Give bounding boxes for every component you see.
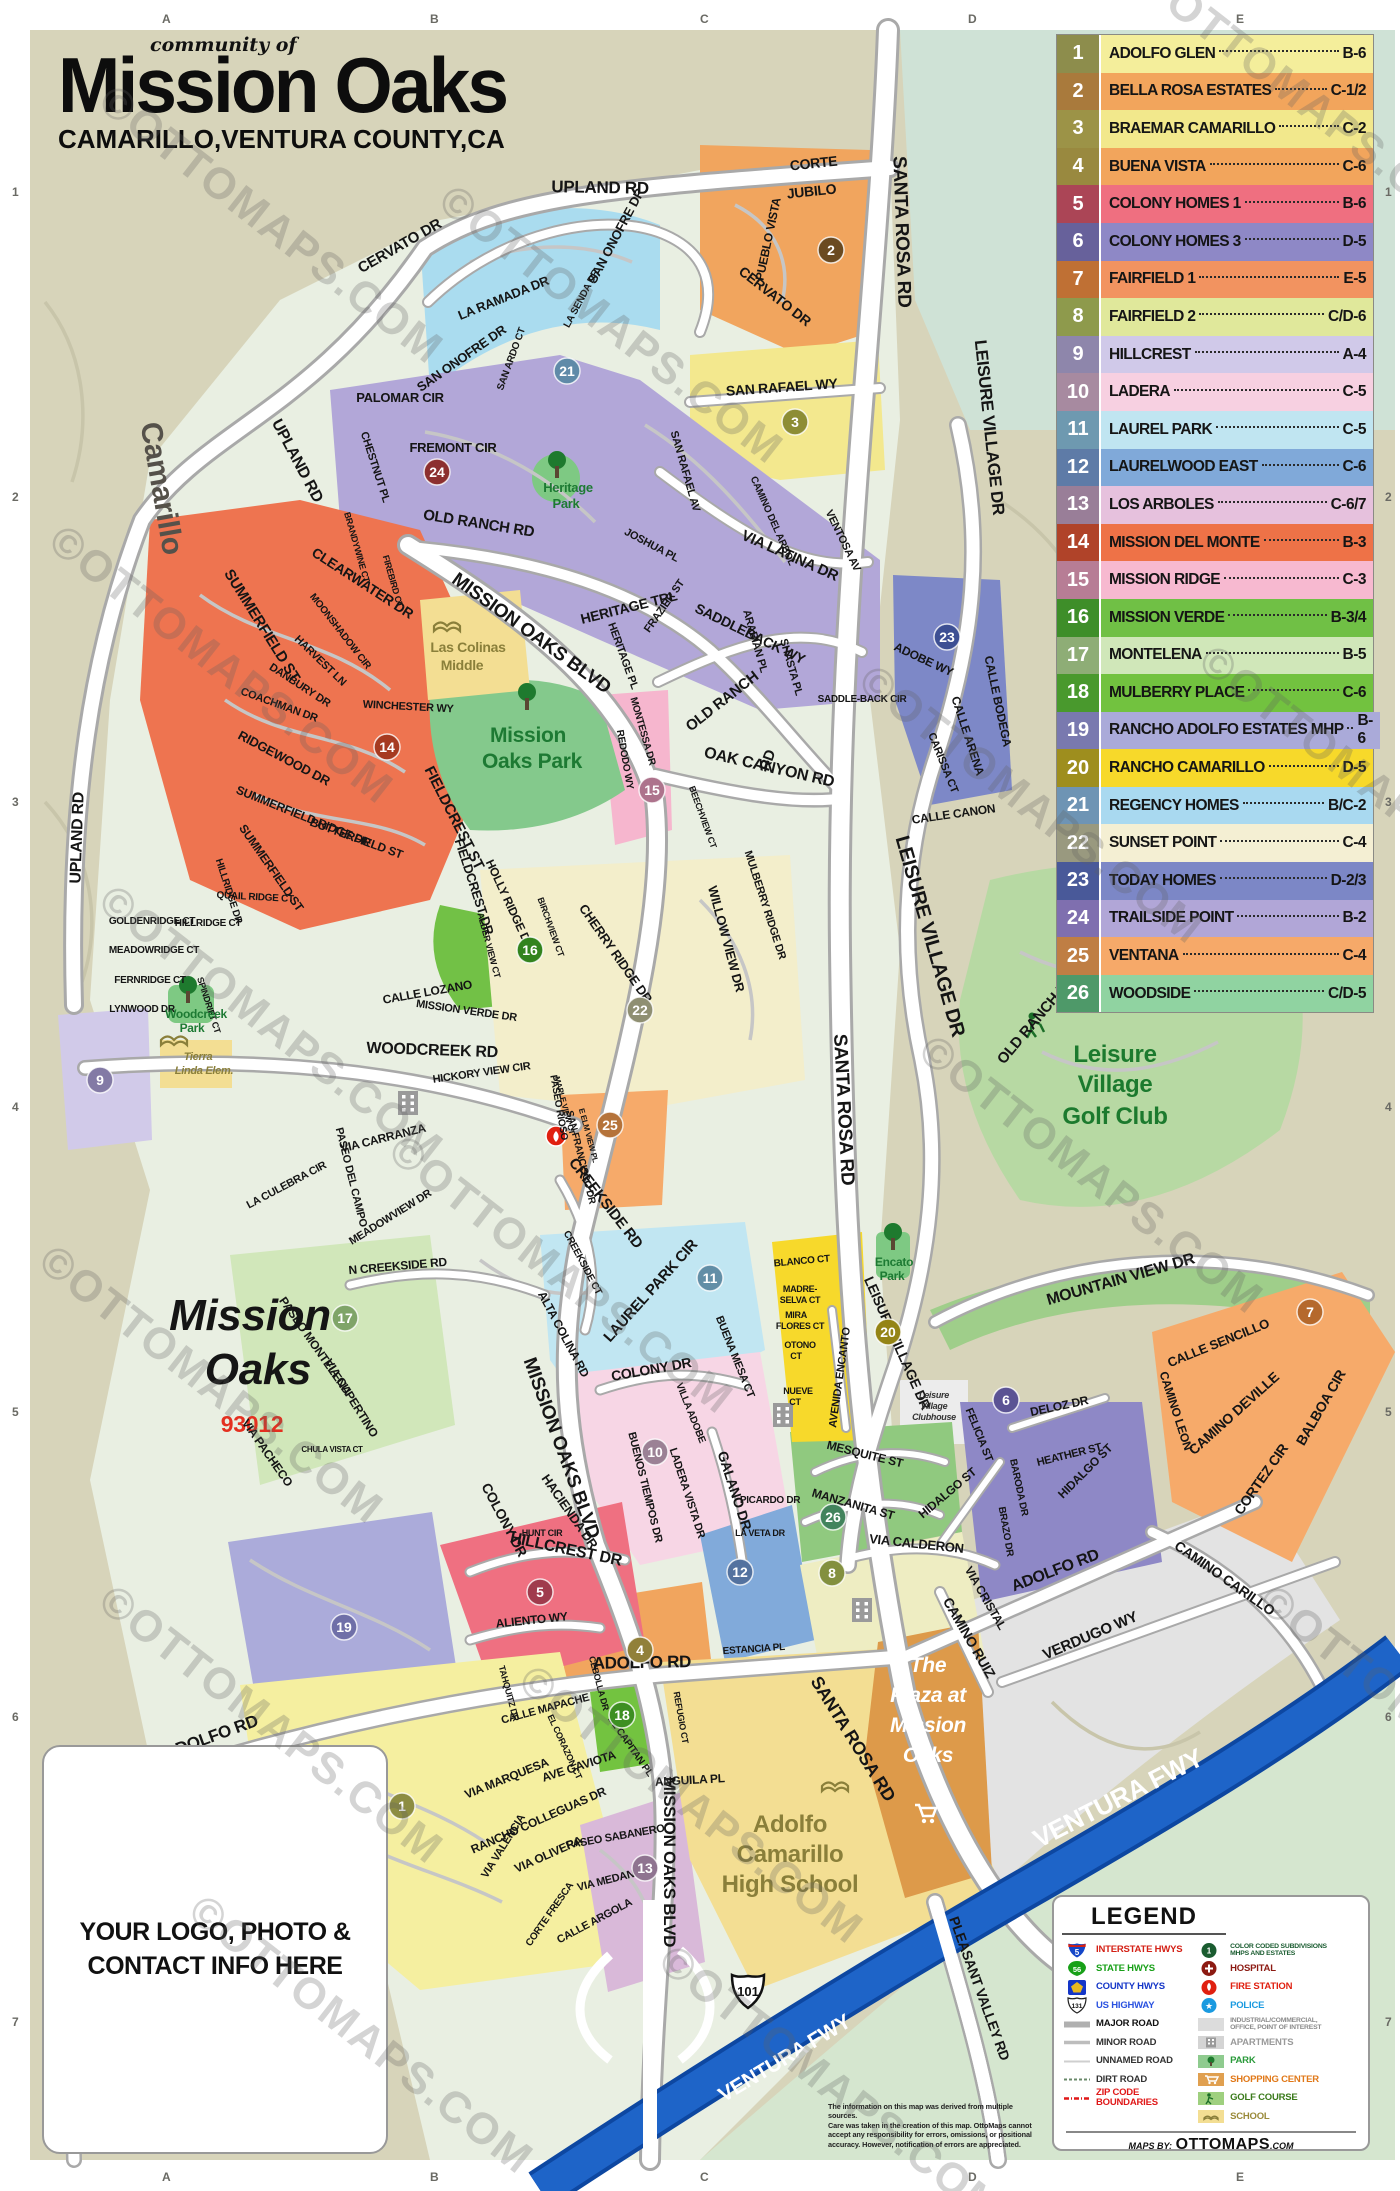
map-label: FERNRIDGE CT (114, 975, 186, 986)
subdivision-marker: 2 (818, 237, 844, 263)
index-row-name: MISSION RIDGE (1109, 571, 1220, 589)
index-row: 10LADERAC-5 (1057, 373, 1373, 411)
map-label: Oaks Park (482, 750, 583, 773)
index-row-gridref: C/D-5 (1328, 985, 1366, 1003)
legend-left-column: 5INTERSTATE HWYS56STATE HWYSCOUNTY HWYS1… (1062, 1941, 1196, 2126)
map-label: MISSION OAKS BLVD (660, 1777, 679, 1947)
legend-row-label: APARTMENTS (1230, 2038, 1293, 2048)
svg-text:13: 13 (637, 1860, 653, 1876)
index-row: 9HILLCRESTA-4 (1057, 336, 1373, 374)
subdivision-marker: 20 (875, 1319, 901, 1345)
index-row-name: RANCHO ADOLFO ESTATES MHP (1109, 721, 1343, 739)
subdivision-marker: 11 (697, 1265, 723, 1291)
index-row-gridref: A-4 (1343, 346, 1366, 364)
grid-label: 1 (12, 185, 19, 199)
map-label: Park (553, 496, 581, 511)
index-row-leader (1210, 163, 1339, 165)
map-label: LA VETA DR (735, 1528, 785, 1538)
grid-label: 5 (12, 1405, 19, 1419)
legend-row-label: DIRT ROAD (1096, 2075, 1147, 2085)
subdivision-marker: 21 (554, 358, 580, 384)
index-row-leader (1245, 201, 1339, 203)
svg-text:26: 26 (825, 1509, 841, 1525)
index-row-name: FAIRFIELD 1 (1109, 270, 1195, 288)
legend-box: LEGEND 5INTERSTATE HWYS56STATE HWYSCOUNT… (1052, 1895, 1370, 2151)
index-row-number: 13 (1057, 486, 1099, 524)
legend-row-label: SHOPPING CENTER (1230, 2075, 1319, 2085)
index-row-name: LADERA (1109, 383, 1170, 401)
legend-row-label: COUNTY HWYS (1096, 1982, 1165, 1992)
index-row-leader (1195, 351, 1339, 353)
index-row-name: MONTELENA (1109, 646, 1202, 664)
index-row-leader (1220, 877, 1327, 879)
index-row-gridref: B-6 (1343, 195, 1366, 213)
map-label: Heritage (543, 480, 593, 495)
subdivision-circle-icon: 1 (1196, 1942, 1230, 1959)
subdivision-marker: 15 (639, 777, 665, 803)
legend-credit: MAPS BY: OTTOMAPS.COM (1062, 2136, 1360, 2154)
svg-text:14: 14 (379, 739, 395, 755)
map-label: Mission (890, 1714, 966, 1737)
map-label: Las Colinas (430, 639, 506, 655)
index-row-number: 3 (1057, 110, 1099, 148)
legend-row-label: FIRE STATION (1230, 1982, 1292, 1992)
legend-row: MINOR ROAD (1062, 2034, 1196, 2053)
index-row-number: 15 (1057, 561, 1099, 599)
map-label: Leisure (1073, 1041, 1156, 1068)
map-label: CT (790, 1351, 802, 1361)
map-label: NUEVE (783, 1386, 813, 1396)
subdivision-marker: 17 (332, 1305, 358, 1331)
disclaimer-text: The information on this map was derived … (828, 2102, 1038, 2149)
subdivision-index: 1ADOLFO GLENB-62BELLA ROSA ESTATESC-1/23… (1056, 34, 1374, 1013)
svg-text:23: 23 (939, 629, 955, 645)
legend-row-label: MINOR ROAD (1096, 2038, 1156, 2048)
index-row-leader (1269, 765, 1339, 767)
subdivision-marker: 26 (820, 1504, 846, 1530)
svg-text:6: 6 (1002, 1392, 1010, 1408)
map-label: CHULA VISTA CT (301, 1445, 363, 1454)
index-row-name: ADOLFO GLEN (1109, 45, 1215, 63)
swatch-school-icon (1196, 2108, 1230, 2125)
legend-row-label: POLICE (1230, 2001, 1264, 2011)
legend-row-label: INTERSTATE HWYS (1096, 1945, 1182, 1955)
index-row-leader (1245, 238, 1339, 240)
subdivision-marker: 22 (627, 997, 653, 1023)
svg-text:3: 3 (791, 414, 799, 430)
us-shield-icon: 131 (1062, 1997, 1096, 2014)
legend-row: INDUSTRIAL/COMMERCIAL, OFFICE, POINT OF … (1196, 2015, 1360, 2034)
svg-text:131: 131 (1072, 2003, 1083, 2010)
svg-text:10: 10 (647, 1444, 663, 1460)
index-row-leader (1194, 990, 1324, 992)
index-row-gridref: D-5 (1343, 233, 1366, 251)
svg-text:20: 20 (880, 1324, 896, 1340)
index-row-leader (1218, 501, 1327, 503)
index-row-gridref: E-5 (1343, 270, 1366, 288)
legend-row: 1COLOR CODED SUBDIVISIONS MHPS AND ESTAT… (1196, 1941, 1360, 1960)
map-label: OTONO (784, 1340, 816, 1350)
legend-row: MAJOR ROAD (1062, 2015, 1196, 2034)
interstate-shield-icon: 5 (1062, 1942, 1096, 1959)
svg-text:16: 16 (522, 942, 538, 958)
index-row: 15MISSION RIDGEC-3 (1057, 561, 1373, 599)
police-icon: ★ (1196, 1997, 1230, 2014)
grid-label: C (700, 12, 709, 26)
major-road-icon (1062, 2016, 1096, 2033)
grid-label: B (430, 2170, 439, 2184)
index-row-leader (1199, 276, 1339, 278)
index-row-gridref: C-2 (1343, 120, 1366, 138)
index-row-leader (1275, 88, 1326, 90)
svg-text:8: 8 (828, 1565, 836, 1581)
index-row-gridref: C-5 (1343, 421, 1366, 439)
grid-label: C (700, 2170, 709, 2184)
index-row: 17MONTELENAB-5 (1057, 637, 1373, 675)
swatch-shopping-icon (1196, 2071, 1230, 2088)
subdivision-marker: 12 (727, 1559, 753, 1585)
legend-title-rule (1062, 1933, 1226, 1935)
map-label: HILLRIDGE CT (175, 918, 242, 929)
subdivision-marker: 18 (609, 1702, 635, 1728)
map-label: Village (1078, 1071, 1153, 1098)
index-row-name: TRAILSIDE POINT (1109, 909, 1233, 927)
swatch-apartments-icon (1196, 2034, 1230, 2051)
map-label: PICARDO DR (740, 1495, 801, 1506)
swatch-park-icon (1196, 2053, 1230, 2070)
zip-boundary-icon (1062, 2090, 1096, 2107)
index-row-name: MULBERRY PLACE (1109, 684, 1244, 702)
legend-row: SCHOOL (1196, 2108, 1360, 2127)
index-row-number: 21 (1057, 787, 1099, 825)
index-row-gridref: C-5 (1343, 383, 1366, 401)
legend-row-label: INDUSTRIAL/COMMERCIAL, OFFICE, POINT OF … (1230, 2017, 1321, 2031)
subdivision-marker: 9 (87, 1067, 113, 1093)
svg-text:11: 11 (703, 1270, 718, 1286)
map-label: Tierra (184, 1051, 213, 1063)
grid-label: 6 (1385, 1710, 1392, 1724)
svg-text:56: 56 (1073, 1965, 1081, 1974)
subdivision-marker: 13 (632, 1855, 658, 1881)
index-row: 23TODAY HOMESD-2/3 (1057, 862, 1373, 900)
index-row: 18MULBERRY PLACEC-6 (1057, 674, 1373, 712)
map-label: Oaks (205, 1345, 311, 1394)
index-row-leader (1347, 727, 1353, 729)
index-row: 16MISSION VERDEB-3/4 (1057, 599, 1373, 637)
index-row-gridref: C-1/2 (1331, 82, 1366, 100)
index-row-leader (1237, 915, 1338, 917)
index-row: 13LOS ARBOLESC-6/7 (1057, 486, 1373, 524)
map-label: Clubhouse (912, 1412, 956, 1422)
svg-text:101: 101 (737, 1984, 759, 1999)
index-row: 12LAURELWOOD EASTC-6 (1057, 449, 1373, 487)
subdivision-marker: 19 (331, 1614, 357, 1640)
legend-row-label: HOSPITAL (1230, 1964, 1276, 1974)
legend-row: UNNAMED ROAD (1062, 2052, 1196, 2071)
index-row-gridref: B-5 (1343, 646, 1366, 664)
index-row-name: LAURELWOOD EAST (1109, 458, 1258, 476)
index-row-number: 2 (1057, 73, 1099, 111)
index-row-name: REGENCY HOMES (1109, 797, 1239, 815)
index-row-gridref: C-3 (1343, 571, 1366, 589)
map-poster: { "page": { "title_script": "community o… (0, 0, 1400, 2191)
index-row-leader (1228, 614, 1326, 616)
index-row-number: 16 (1057, 599, 1099, 637)
legend-row-label: SCHOOL (1230, 2112, 1269, 2122)
index-row-name: MISSION DEL MONTE (1109, 534, 1260, 552)
index-row-name: MISSION VERDE (1109, 609, 1224, 627)
disclaimer-line: The information on this map was derived … (828, 2102, 1038, 2121)
grid-label: A (162, 2170, 171, 2184)
index-row-number: 25 (1057, 937, 1099, 975)
legend-row: HOSPITAL (1196, 1960, 1360, 1979)
grid-label: D (968, 12, 977, 26)
map-label: Middle (441, 657, 484, 673)
legend-row: COUNTY HWYS (1062, 1978, 1196, 1997)
index-row-number: 20 (1057, 749, 1099, 787)
svg-text:5: 5 (1075, 1948, 1080, 1957)
map-label: PALOMAR CIR (356, 390, 444, 405)
subdivision-marker: 8 (819, 1560, 845, 1586)
index-row: 14MISSION DEL MONTEB-3 (1057, 524, 1373, 562)
svg-text:9: 9 (96, 1072, 104, 1088)
svg-text:18: 18 (614, 1707, 630, 1723)
svg-text:4: 4 (636, 1642, 644, 1658)
index-row-leader (1264, 539, 1339, 541)
index-row-gridref: B-6 (1357, 712, 1372, 748)
svg-text:12: 12 (732, 1564, 748, 1580)
legend-row-label: UNNAMED ROAD (1096, 2056, 1173, 2066)
grid-label: 7 (12, 2015, 19, 2029)
index-row-number: 24 (1057, 900, 1099, 938)
index-row-leader (1174, 389, 1339, 391)
map-label: Park (180, 1021, 205, 1035)
grid-label: 2 (12, 490, 19, 504)
svg-text:2: 2 (827, 242, 835, 258)
map-label: Encato (875, 1255, 913, 1269)
index-row-name: COLONY HOMES 3 (1109, 233, 1241, 251)
subdivision-marker: 4 (627, 1637, 653, 1663)
index-row-gridref: B-3 (1343, 534, 1366, 552)
subdivision-marker: 10 (642, 1439, 668, 1465)
index-row: 22SUNSET POINTC-4 (1057, 824, 1373, 862)
logo-placeholder-box: YOUR LOGO, PHOTO & CONTACT INFO HERE (42, 1745, 388, 2154)
map-label: UPLAND RD (67, 792, 87, 884)
svg-text:22: 22 (632, 1002, 648, 1018)
map-label: Camarillo (737, 1841, 844, 1868)
grid-label: B (430, 12, 439, 26)
map-label: Adolfo (753, 1811, 827, 1838)
legend-row-label: STATE HWYS (1096, 1964, 1155, 1974)
legend-row: ZIP CODE BOUNDARIES (1062, 2089, 1196, 2108)
index-row-gridref: C/D-6 (1328, 308, 1366, 326)
legend-row: 5INTERSTATE HWYS (1062, 1941, 1196, 1960)
index-row-number: 1 (1057, 35, 1099, 73)
index-row-leader (1216, 426, 1338, 428)
index-row-gridref: B-2 (1343, 909, 1366, 927)
index-row: 8FAIRFIELD 2C/D-6 (1057, 298, 1373, 336)
map-label: CT (789, 1397, 801, 1407)
index-row-number: 11 (1057, 411, 1099, 449)
map-label: Golf Club (1062, 1103, 1167, 1130)
subdivision-marker: 7 (1297, 1299, 1323, 1325)
index-row-number: 5 (1057, 185, 1099, 223)
grid-label: 6 (12, 1710, 19, 1724)
legend-row: 56STATE HWYS (1062, 1960, 1196, 1979)
svg-text:7: 7 (1306, 1304, 1314, 1320)
index-row-leader (1219, 50, 1338, 52)
index-row-name: RANCHO CAMARILLO (1109, 759, 1265, 777)
index-row-gridref: B/C-2 (1328, 797, 1366, 815)
index-row-leader (1248, 689, 1338, 691)
grid-label: 3 (12, 795, 19, 809)
index-row-gridref: C-6 (1343, 458, 1366, 476)
index-row: 1ADOLFO GLENB-6 (1057, 35, 1373, 73)
legend-row-label: PARK (1230, 2056, 1255, 2066)
disclaimer-line: accept any responsibility for errors, om… (828, 2130, 1038, 2139)
index-row: 7FAIRFIELD 1E-5 (1057, 261, 1373, 299)
grid-label: 4 (1385, 1100, 1392, 1114)
fire-icon (1196, 1979, 1230, 1996)
index-row-gridref: D-2/3 (1331, 872, 1366, 890)
grid-label: E (1236, 12, 1244, 26)
legend-row-label: MAJOR ROAD (1096, 2019, 1159, 2029)
subdivision-marker: 14 (374, 734, 400, 760)
map-label: High School (722, 1871, 859, 1898)
hospital-icon (1196, 1960, 1230, 1977)
map-label: Village (921, 1401, 948, 1411)
disclaimer-line: Care was taken in the creation of this m… (828, 2121, 1038, 2130)
legend-row: ★POLICE (1196, 1997, 1360, 2016)
map-label: MEADOWRIDGE CT (109, 945, 199, 956)
index-row: 26WOODSIDEC/D-5 (1057, 975, 1373, 1013)
map-label: Park (880, 1269, 905, 1283)
logo-line-2: CONTACT INFO HERE (88, 1950, 343, 1984)
index-row: 24TRAILSIDE POINTB-2 (1057, 900, 1373, 938)
index-row-gridref: C-6 (1343, 158, 1366, 176)
legend-row: 131US HIGHWAY (1062, 1997, 1196, 2016)
index-row-leader (1199, 313, 1324, 315)
subdivision-marker: 5 (527, 1579, 553, 1605)
index-row-leader (1262, 464, 1339, 466)
index-row-name: WOODSIDE (1109, 985, 1190, 1003)
apartments-icon (398, 1091, 418, 1115)
legend-row: FIRE STATION (1196, 1978, 1360, 1997)
index-row: 21REGENCY HOMESB/C-2 (1057, 787, 1373, 825)
map-label: Woodcreek (165, 1007, 227, 1021)
index-row-name: SUNSET POINT (1109, 834, 1216, 852)
index-row-name: LAUREL PARK (1109, 421, 1212, 439)
grid-label: E (1236, 2170, 1244, 2184)
map-label: FREMONT CIR (410, 440, 498, 455)
grid-label: 2 (1385, 490, 1392, 504)
index-row-name: COLONY HOMES 1 (1109, 195, 1241, 213)
swatch-golf-icon (1196, 2090, 1230, 2107)
index-row-name: HILLCREST (1109, 346, 1191, 364)
subdivision-marker: 1 (389, 1793, 415, 1819)
svg-text:17: 17 (337, 1310, 353, 1326)
index-row: 11LAUREL PARKC-5 (1057, 411, 1373, 449)
index-row-number: 7 (1057, 261, 1099, 299)
svg-text:★: ★ (1205, 2001, 1213, 2011)
logo-line-1: YOUR LOGO, PHOTO & (79, 1916, 350, 1950)
legend-row-label: COLOR CODED SUBDIVISIONS MHPS AND ESTATE… (1230, 1943, 1327, 1957)
svg-text:19: 19 (336, 1619, 352, 1635)
svg-text:25: 25 (602, 1117, 618, 1133)
index-row-number: 6 (1057, 223, 1099, 261)
index-row: 2BELLA ROSA ESTATESC-1/2 (1057, 73, 1373, 111)
grid-label: D (968, 2170, 977, 2184)
state-shield-icon: 56 (1062, 1960, 1096, 1977)
credit-brand: OTTOMAPS (1176, 2136, 1270, 2153)
credit-suffix: .COM (1270, 2141, 1294, 2151)
index-row-gridref: C-4 (1343, 834, 1366, 852)
apartments-icon (852, 1598, 872, 1622)
index-row-name: VENTANA (1109, 947, 1179, 965)
index-row-leader (1243, 802, 1324, 804)
index-row-number: 8 (1057, 298, 1099, 336)
svg-text:1: 1 (1207, 1946, 1212, 1955)
index-row-leader (1279, 125, 1338, 127)
index-row-number: 12 (1057, 449, 1099, 487)
index-row-name: FAIRFIELD 2 (1109, 308, 1195, 326)
index-row-name: LOS ARBOLES (1109, 496, 1214, 514)
grid-label: A (162, 12, 171, 26)
legend-right-column: 1COLOR CODED SUBDIVISIONS MHPS AND ESTAT… (1196, 1941, 1360, 2126)
legend-row: PARK (1196, 2052, 1360, 2071)
grid-label: 1 (1385, 185, 1392, 199)
unnamed-road-icon (1062, 2053, 1096, 2070)
subdivision-marker: 23 (934, 624, 960, 650)
map-label: Linda Elem. (175, 1065, 234, 1077)
index-row: 6COLONY HOMES 3D-5 (1057, 223, 1373, 261)
map-label: Mission (490, 724, 566, 747)
svg-text:21: 21 (559, 363, 575, 379)
map-label: The (910, 1654, 947, 1677)
grid-label: 7 (1385, 2015, 1392, 2029)
map-label: Oaks (903, 1744, 953, 1767)
map-label: SADDLE-BACK CIR (818, 694, 908, 705)
county-shield-icon (1062, 1979, 1096, 1996)
index-row-gridref: D-5 (1343, 759, 1366, 777)
index-row: 20RANCHO CAMARILLOD-5 (1057, 749, 1373, 787)
subdivision-marker: 6 (993, 1387, 1019, 1413)
index-row-name: BUENA VISTA (1109, 158, 1206, 176)
grid-label: 3 (1385, 795, 1392, 809)
index-row-leader (1206, 652, 1339, 654)
legend-row: DIRT ROAD (1062, 2071, 1196, 2090)
dirt-road-icon (1062, 2071, 1096, 2088)
index-row-leader (1220, 840, 1338, 842)
credit-prefix: MAPS BY: (1128, 2141, 1172, 2151)
index-row: 25VENTANAC-4 (1057, 937, 1373, 975)
index-row-number: 26 (1057, 975, 1099, 1013)
svg-text:5: 5 (536, 1584, 544, 1600)
index-row-gridref: C-4 (1343, 947, 1366, 965)
map-label: Plaza at (890, 1684, 967, 1707)
index-row-gridref: B-3/4 (1331, 609, 1366, 627)
index-row-gridref: C-6 (1343, 684, 1366, 702)
page-title: Mission Oaks (58, 48, 506, 122)
grid-label: 4 (12, 1100, 19, 1114)
index-row-number: 17 (1057, 637, 1099, 675)
index-row-name: BELLA ROSA ESTATES (1109, 82, 1271, 100)
subdivision-marker: 24 (424, 459, 450, 485)
index-row-number: 9 (1057, 336, 1099, 374)
index-row: 4BUENA VISTAC-6 (1057, 148, 1373, 186)
index-row-leader (1183, 953, 1339, 955)
index-row-leader (1224, 577, 1338, 579)
